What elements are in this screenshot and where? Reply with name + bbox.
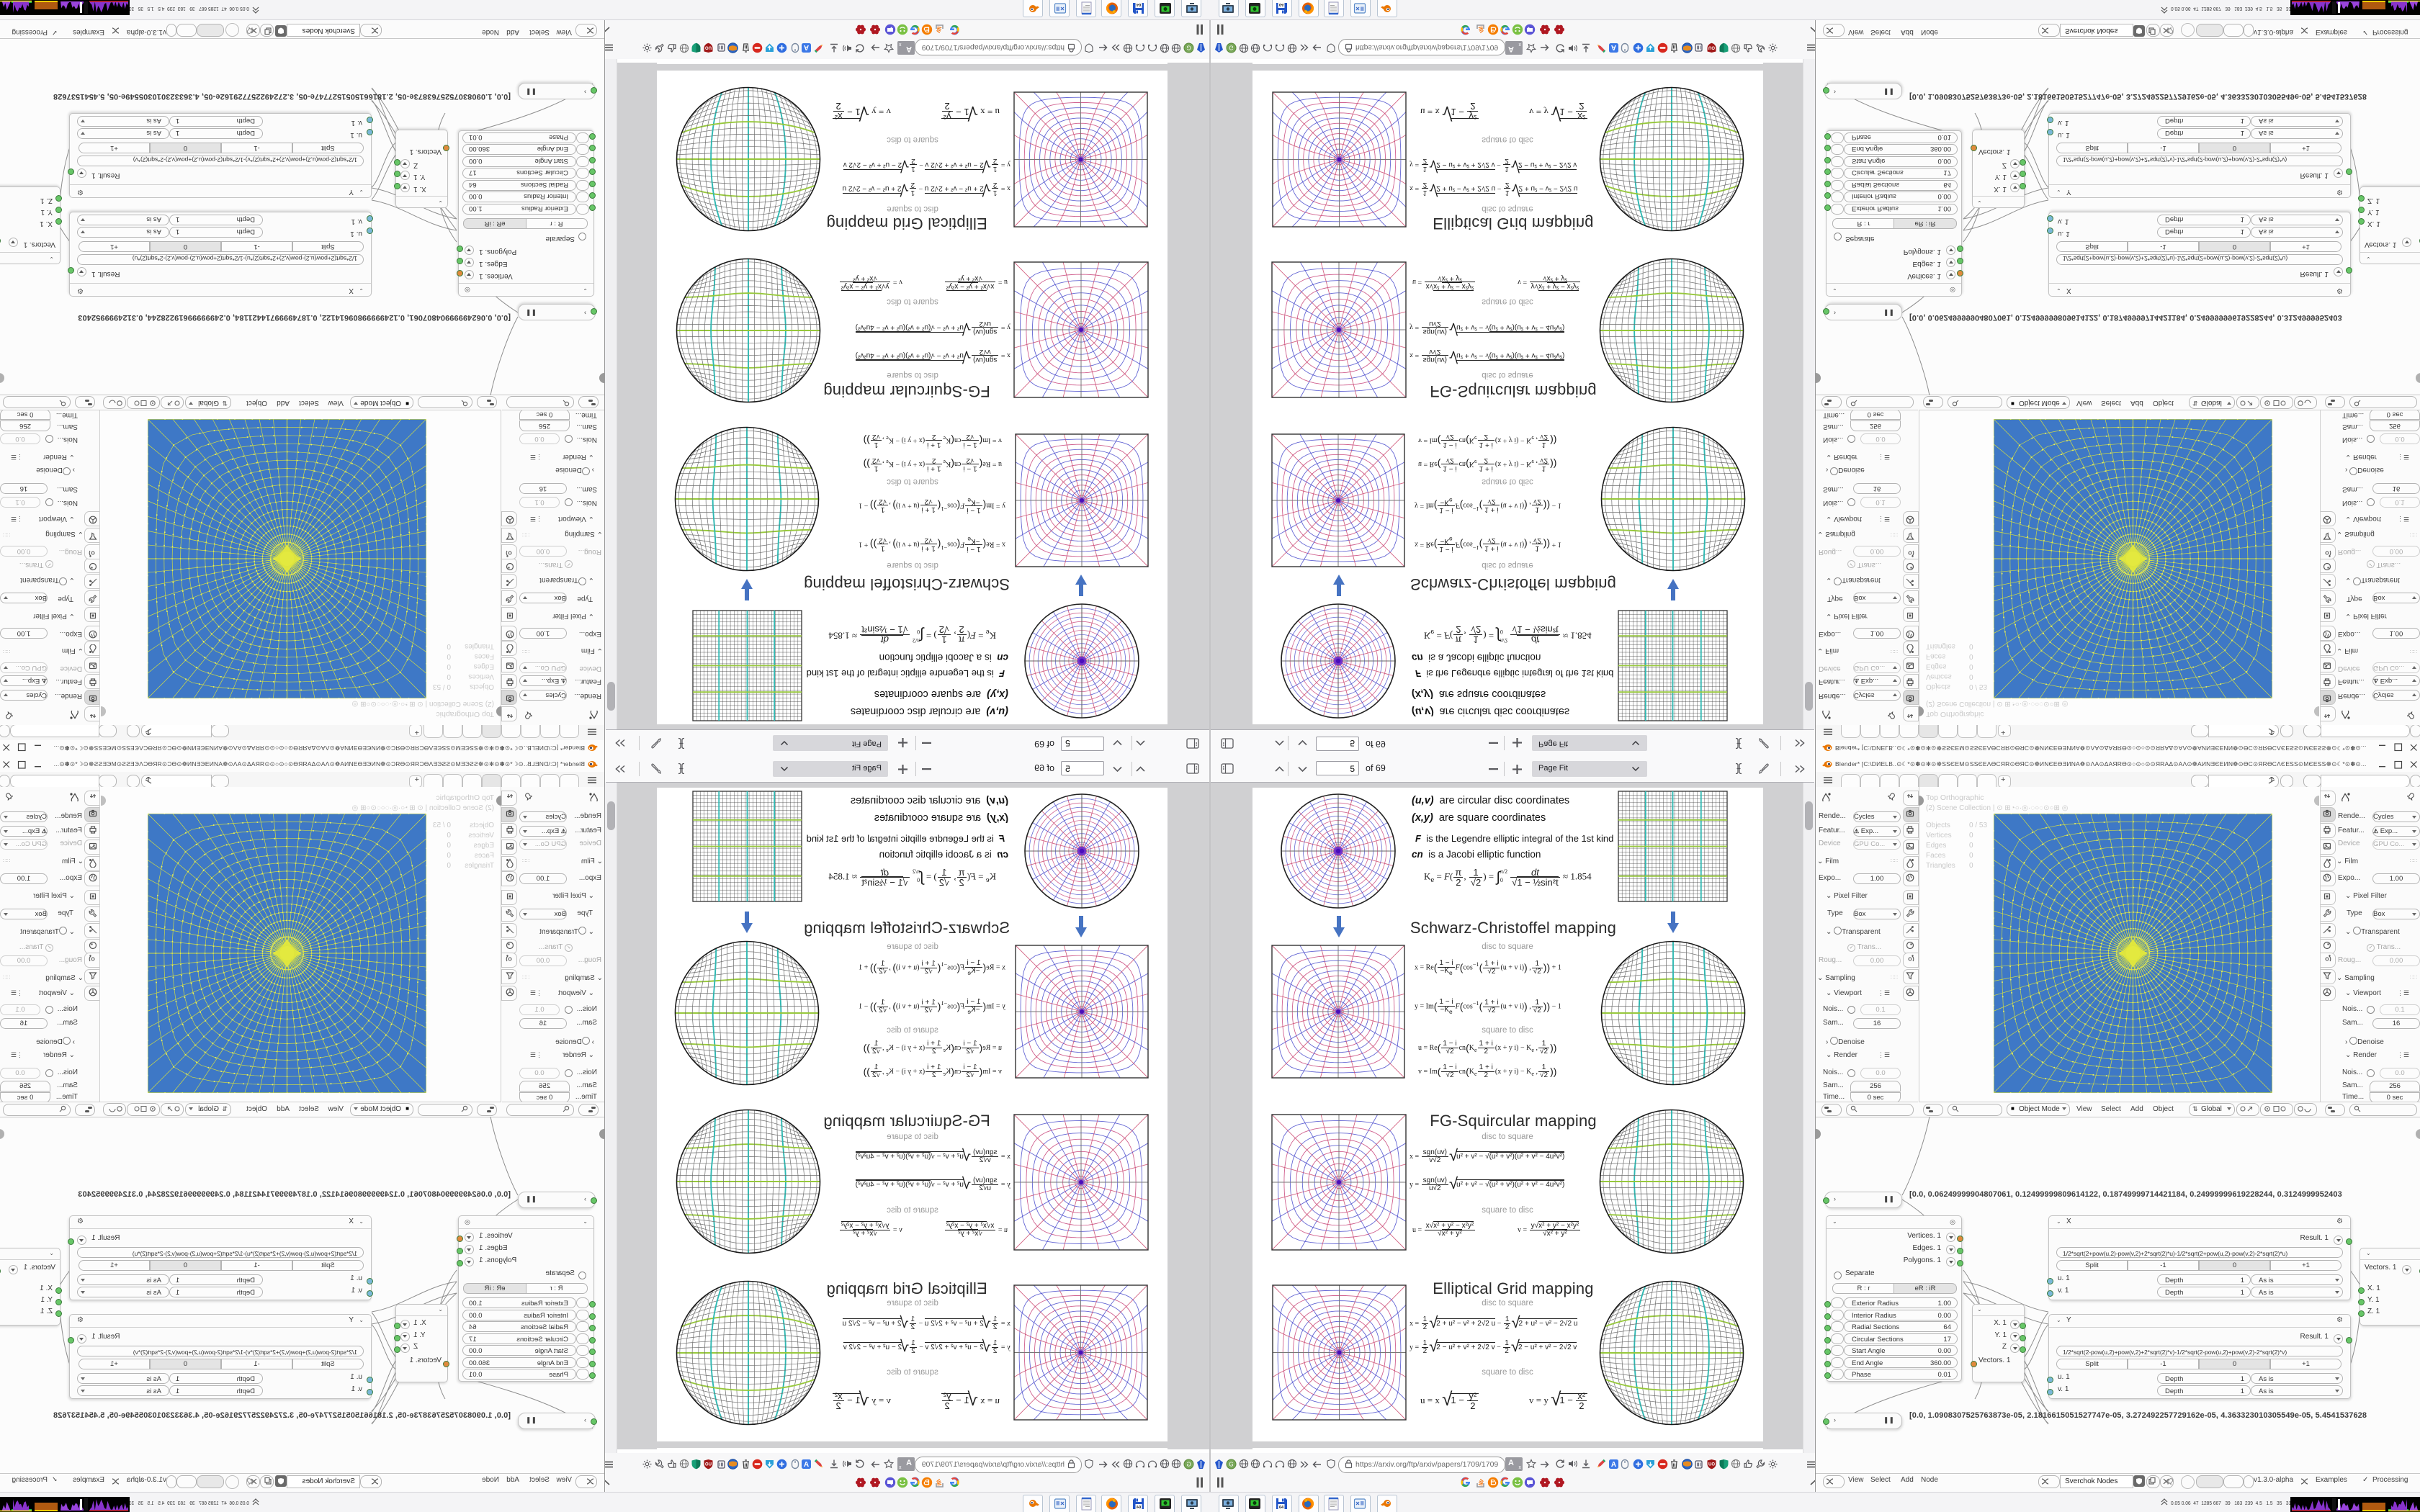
svg-text:64: 64: [1136, 2, 1141, 6]
svg-text:G: G: [1229, 1462, 1233, 1468]
svg-text:G: G: [1229, 45, 1233, 51]
svg-text:UO: UO: [705, 45, 712, 50]
svg-text:UO: UO: [705, 1463, 712, 1467]
svg-text:G: G: [1186, 45, 1191, 51]
svg-text:G: G: [1186, 1462, 1191, 1468]
svg-text:64: 64: [1279, 2, 1284, 6]
svg-text:64: 64: [1136, 1506, 1141, 1510]
svg-text:UO: UO: [1708, 45, 1715, 50]
svg-text:A: A: [804, 1461, 809, 1469]
svg-text:64: 64: [1279, 1506, 1284, 1510]
svg-text:A: A: [1611, 1461, 1616, 1469]
svg-text:A: A: [1611, 43, 1616, 51]
svg-text:A: A: [804, 43, 809, 51]
svg-text:UO: UO: [1708, 1463, 1715, 1467]
